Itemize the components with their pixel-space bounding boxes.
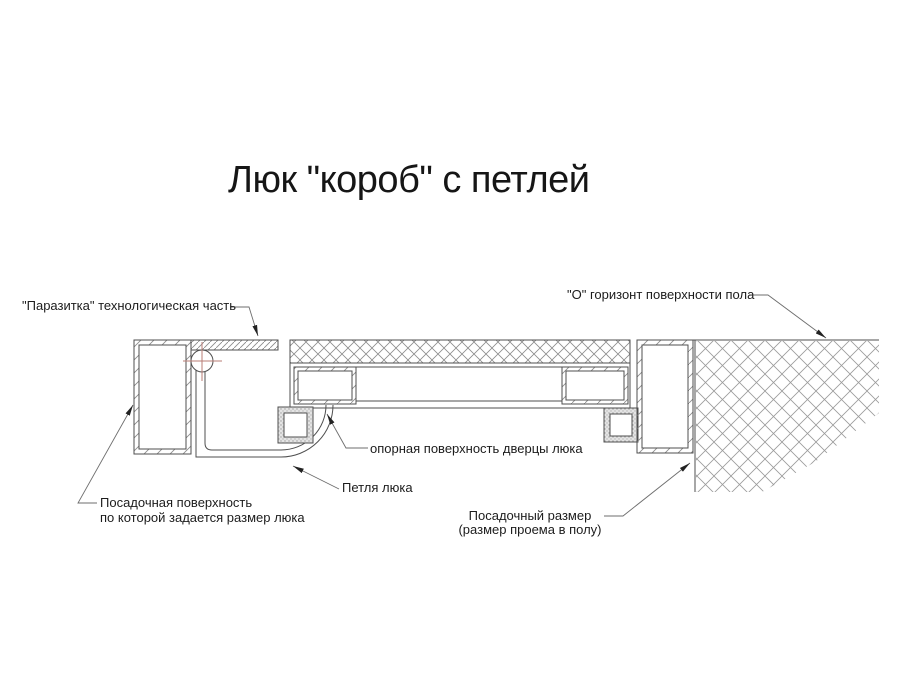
floor-hatch-area [696, 341, 879, 492]
hatch-door [290, 340, 630, 408]
right-frame-profile [637, 340, 693, 453]
leader-seating-size [604, 463, 690, 516]
callout-seating-size: Посадочный размер (размер проема в полу) [452, 509, 608, 536]
callout-seating-surface-line2: по которой задается размер люка [100, 511, 305, 525]
seal-block-left [278, 407, 313, 443]
leader-seating-surface [78, 405, 133, 503]
hatch-cross-section-drawing [0, 0, 900, 700]
parasite-strip [191, 340, 278, 350]
callout-floor-horizon: "О" горизонт поверхности пола [567, 288, 754, 302]
seal-block-right [604, 408, 638, 442]
callout-parasite-part: "Паразитка" технологическая часть [22, 299, 236, 313]
callout-seating-surface: Посадочная поверхность по которой задает… [100, 496, 305, 525]
floor-section [693, 340, 879, 492]
drawing-title: Люк "короб" с петлей [228, 160, 589, 200]
leader-door-bearing [327, 414, 368, 448]
left-frame-profile [134, 340, 191, 454]
callout-door-bearing-surface: опорная поверхность дверцы люка [370, 442, 583, 456]
callout-seating-surface-line1: Посадочная поверхность [100, 496, 305, 510]
door-tile-slab [290, 340, 630, 363]
callout-hinge: Петля люка [342, 481, 413, 495]
callout-seating-size-line1: Посадочный размер [452, 509, 608, 523]
technical-drawing-page: Люк "короб" с петлей "Паразитка" техноло… [0, 0, 900, 700]
callout-seating-size-line2: (размер проема в полу) [452, 523, 608, 537]
leader-hinge [293, 466, 339, 489]
leader-floor-horizon [749, 295, 826, 338]
